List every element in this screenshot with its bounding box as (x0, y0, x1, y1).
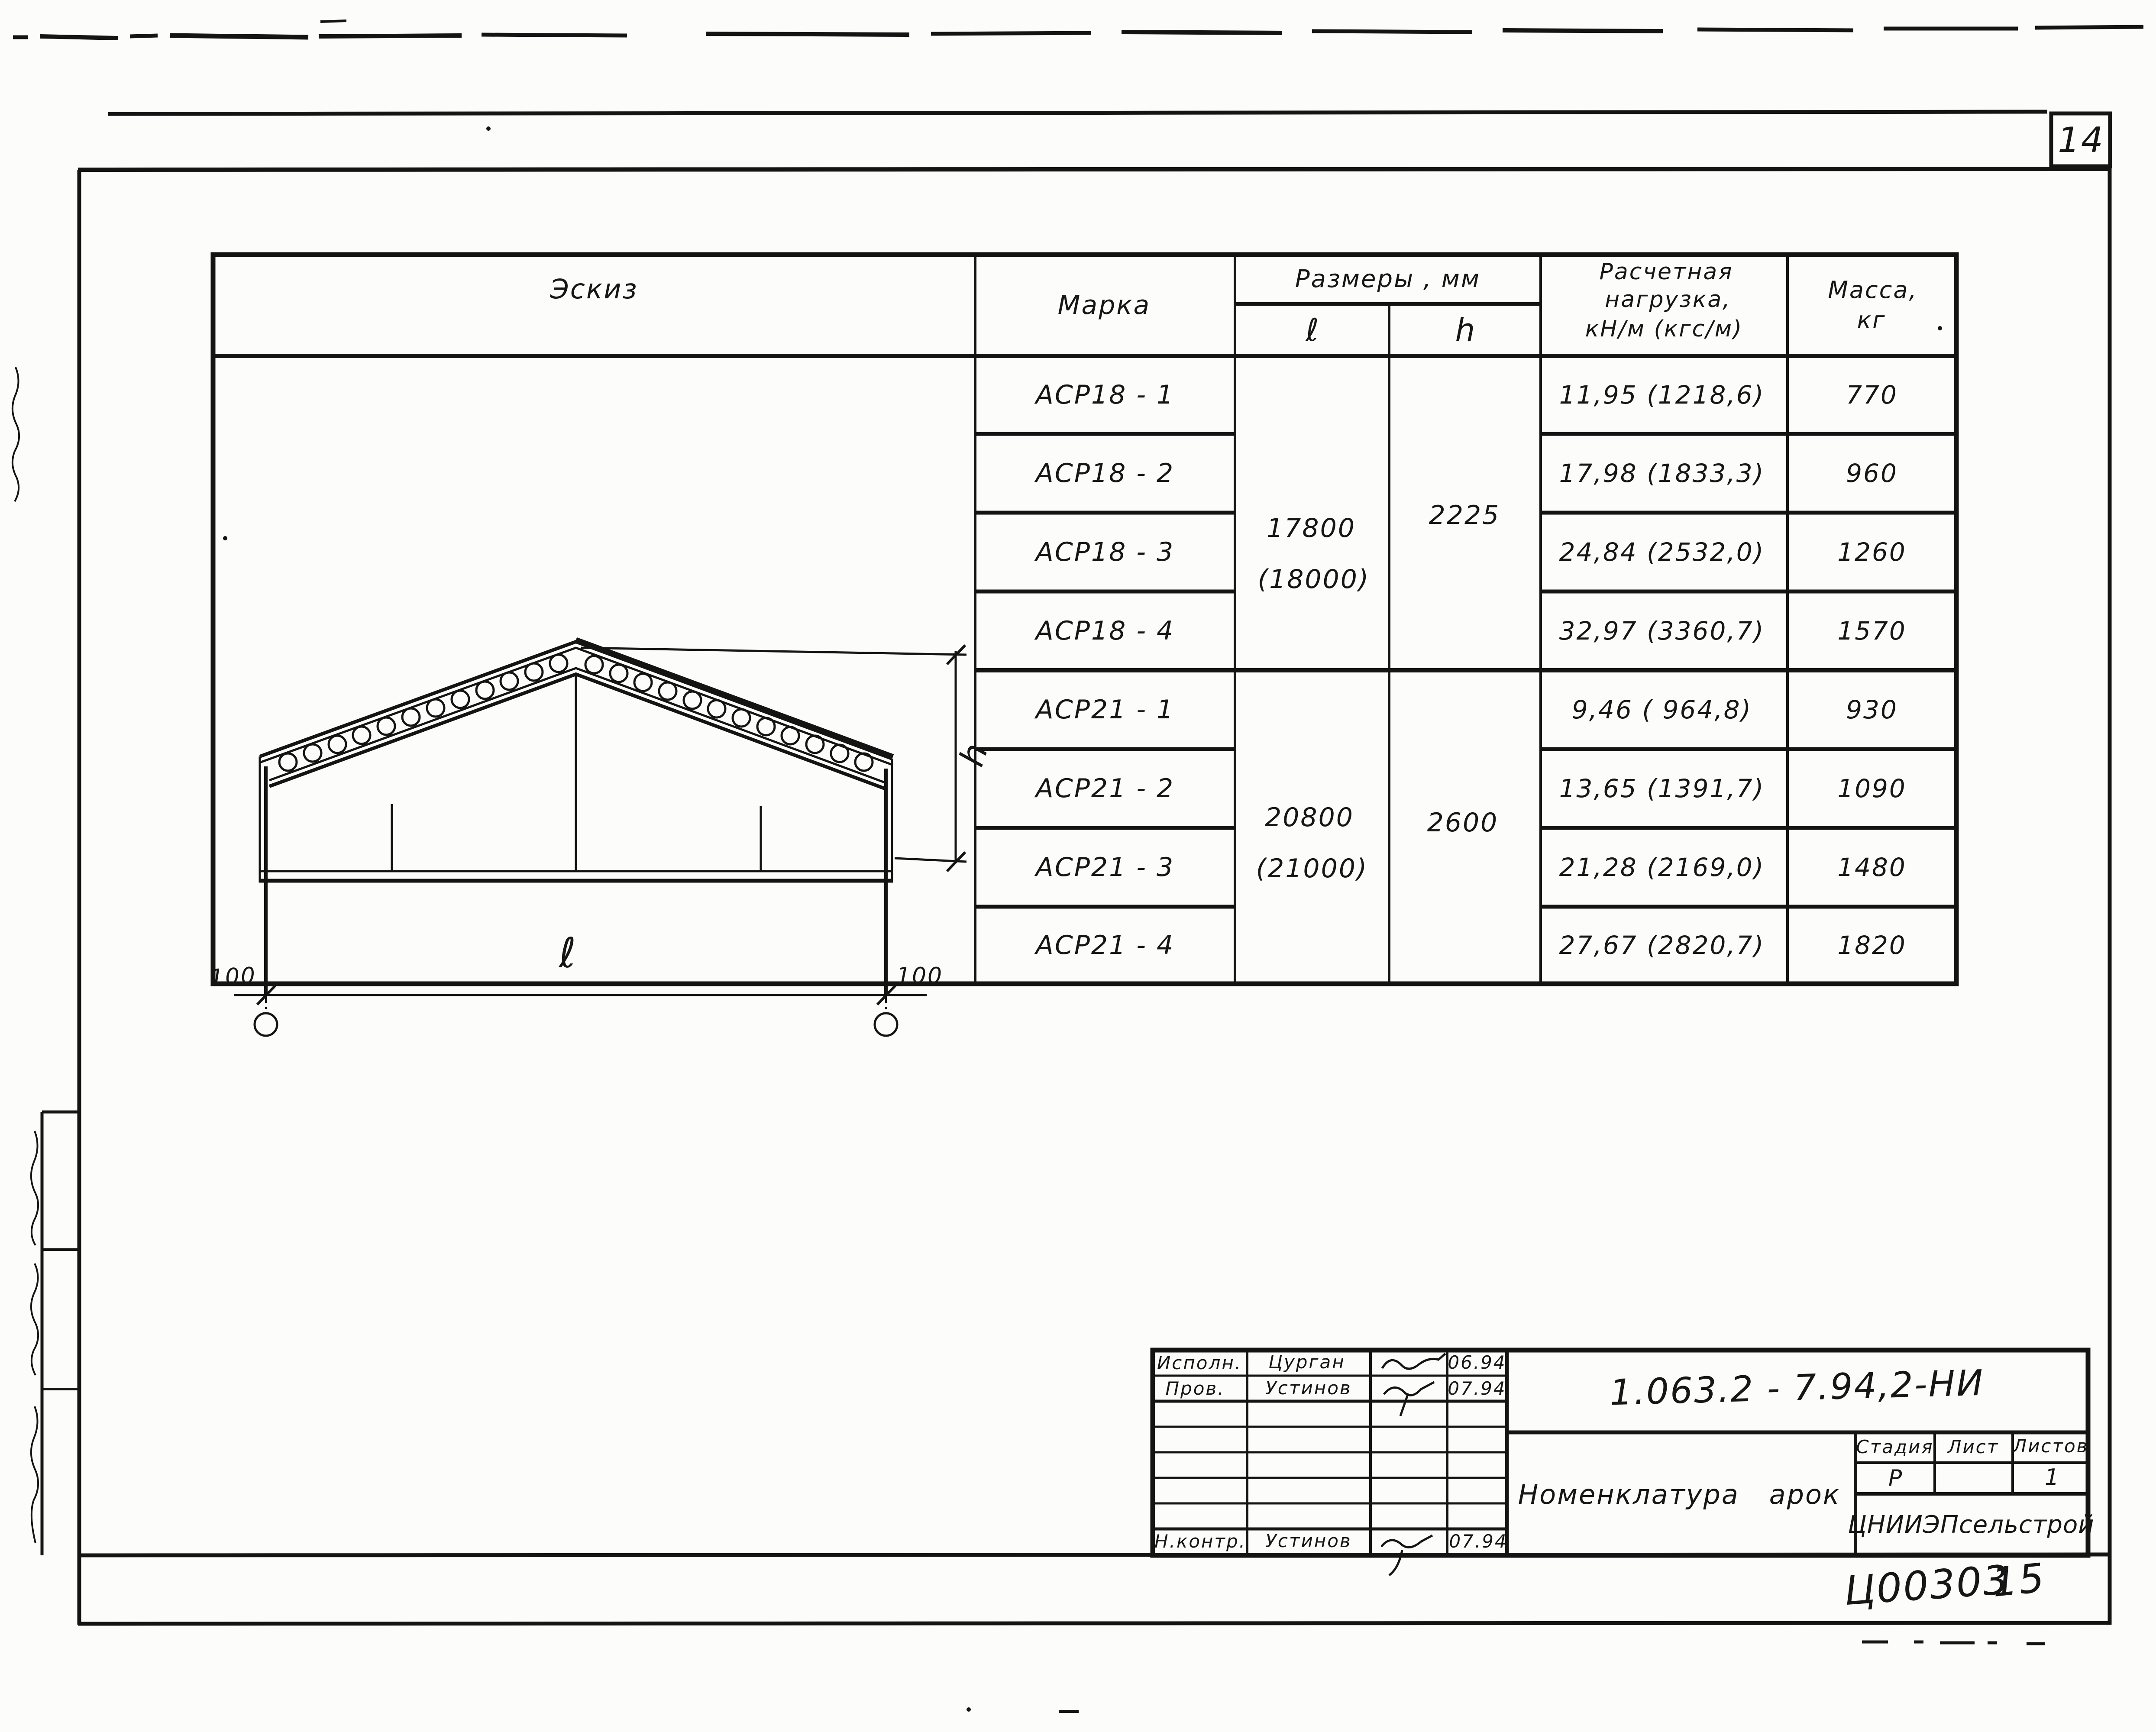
dimension-height (581, 645, 966, 871)
signature-role: Пров. (1165, 1380, 1225, 1398)
sheet-label: Лист (1948, 1438, 1999, 1456)
length-alt-cell: (18000) (1258, 566, 1370, 592)
signature-date: 07.94 (1448, 1380, 1506, 1398)
support-base-circle-left (255, 1013, 277, 1036)
margin-annotation-squiggle (13, 367, 19, 501)
col-header-dim-l: ℓ (1306, 314, 1320, 346)
mass-cell: 960 (1846, 461, 1898, 486)
truss-top-chord-right-thick (576, 640, 893, 757)
signature-date: 07.94 (1449, 1532, 1507, 1551)
line (279, 753, 297, 771)
load-cell: 9,46 ( 964,8) (1572, 697, 1752, 722)
load-cell: 11,95 (1218,6) (1559, 382, 1765, 407)
margin-annotation-squiggle (31, 1263, 38, 1375)
mark-cell: АСР21 - 2 (1036, 776, 1174, 801)
mass-cell: 1820 (1837, 933, 1907, 958)
length-cell: 17800 (1267, 515, 1356, 541)
line (634, 674, 652, 691)
load-cell: 24,84 (2532,0) (1559, 540, 1765, 565)
line (78, 1623, 2111, 1624)
mass-cell: 1480 (1837, 855, 1907, 880)
truss-sketch (234, 640, 966, 1036)
line (708, 700, 725, 717)
line (931, 33, 1091, 34)
sheets-label: Листов (2013, 1437, 2089, 1455)
line (1697, 29, 1853, 30)
col-header-sketch: Эскиз (550, 276, 638, 303)
height-cell: 2600 (1427, 810, 1499, 836)
line (304, 744, 321, 762)
col-header-dimensions: Размеры , мм (1295, 267, 1480, 291)
line (320, 21, 346, 22)
line (806, 736, 824, 753)
mass-cell: 1090 (1837, 776, 1907, 801)
height-cell: 2225 (1429, 502, 1500, 528)
load-cell: 32,97 (3360,7) (1559, 618, 1765, 643)
organization-name: ЦНИИЭПсельстрой (1848, 1513, 2094, 1537)
line (1503, 30, 1663, 31)
line (550, 655, 567, 672)
scan-noise (223, 126, 1942, 1713)
col-header-load-line3: кН/м (кгс/м) (1585, 318, 1743, 340)
stage-value: Р (1888, 1467, 1903, 1490)
line (170, 36, 308, 37)
load-cell: 17,98 (1833,3) (1559, 461, 1765, 486)
line (581, 648, 966, 655)
line (525, 663, 543, 681)
sketch-length-label: ℓ (559, 933, 577, 974)
length-alt-cell: (21000) (1256, 856, 1368, 882)
col-header-dim-h: h (1455, 314, 1477, 346)
sheets-value: 1 (2045, 1466, 2060, 1489)
page-number: 14 (2058, 123, 2104, 158)
mass-cell: 1260 (1837, 540, 1907, 565)
line (1059, 1710, 1079, 1713)
signature-role: Н.контр. (1154, 1532, 1246, 1551)
support-base-circle-right (875, 1013, 897, 1036)
mark-cell: АСР18 - 3 (1036, 539, 1174, 565)
drawing-sheet: 14 Эскиз Марка Размеры , мм ℓ h Расчетна… (0, 0, 2156, 1732)
line (40, 36, 118, 38)
line (378, 717, 395, 735)
sketch-offset-left-label: 100 (209, 964, 257, 989)
line (2035, 27, 2143, 28)
line (585, 656, 603, 673)
archive-stamp-number: 15 (1990, 1558, 2047, 1603)
drawing-title: Номенклатура арок (1518, 1481, 1841, 1508)
line (353, 727, 370, 744)
line (782, 727, 799, 744)
doc-number: 1.063.2 - 7.94,2-НИ (1610, 1366, 1985, 1411)
mark-cell: АСР18 - 1 (1036, 382, 1174, 408)
line (402, 708, 420, 726)
load-cell: 21,28 (2169,0) (1559, 855, 1765, 880)
col-header-mark: Марка (1058, 292, 1151, 318)
line (733, 709, 750, 727)
line (319, 36, 462, 36)
mark-cell: АСР18 - 2 (1036, 460, 1174, 486)
line (757, 718, 775, 735)
line (452, 691, 469, 708)
top-edge-artifacts (13, 21, 2143, 38)
stage-label: Стадия (1856, 1438, 1933, 1456)
line (1312, 31, 1472, 32)
line (108, 112, 2047, 114)
mass-cell: 1570 (1837, 618, 1907, 643)
line (130, 36, 158, 36)
margin-annotation-squiggle (31, 1131, 38, 1245)
line (684, 692, 701, 709)
line (427, 699, 444, 717)
line (486, 126, 491, 131)
left-stamp-strip (13, 367, 79, 1555)
line (855, 753, 873, 771)
mark-cell: АСР21 - 1 (1036, 697, 1174, 723)
line (476, 682, 494, 699)
mark-cell: АСР21 - 4 (1036, 932, 1174, 958)
mass-cell: 770 (1846, 382, 1898, 407)
load-cell: 13,65 (1391,7) (1559, 776, 1765, 801)
line (1938, 326, 1942, 330)
line (966, 1707, 971, 1712)
line (329, 736, 346, 753)
length-cell: 20800 (1265, 805, 1354, 830)
line (706, 34, 909, 35)
signature-name: Устинов (1265, 1379, 1351, 1397)
signature-date: 06.94 (1448, 1354, 1506, 1372)
signature-name: Устинов (1265, 1532, 1351, 1550)
load-cell: 27,67 (2820,7) (1559, 933, 1765, 958)
signature-squiggles (1381, 1354, 1445, 1575)
margin-annotation-squiggle (31, 1406, 38, 1543)
col-header-load-line2: нагрузка, (1605, 288, 1731, 311)
col-header-load-line1: Расчетная (1600, 261, 1733, 283)
line (482, 35, 627, 36)
col-header-mass-line1: Масса, (1828, 278, 1917, 302)
sketch-offset-right-label: 100 (896, 965, 943, 987)
line (78, 169, 2111, 170)
line (223, 536, 227, 540)
archive-stamp-code: Ц00303 (1843, 1560, 2011, 1611)
line (659, 682, 676, 700)
line (501, 672, 518, 690)
signature-name: Цурган (1268, 1353, 1345, 1371)
mark-cell: АСР21 - 3 (1036, 854, 1174, 880)
dimension-length (234, 986, 927, 1005)
signature-squiggle (1384, 1382, 1434, 1416)
line (831, 745, 848, 762)
signature-squiggle (1382, 1354, 1445, 1369)
mark-cell: АСР18 - 4 (1036, 618, 1174, 644)
line (1122, 32, 1282, 33)
col-header-mass-line2: кг (1857, 309, 1886, 332)
signature-role: Исполн. (1157, 1354, 1242, 1372)
line (610, 665, 627, 682)
mass-cell: 930 (1846, 697, 1898, 722)
